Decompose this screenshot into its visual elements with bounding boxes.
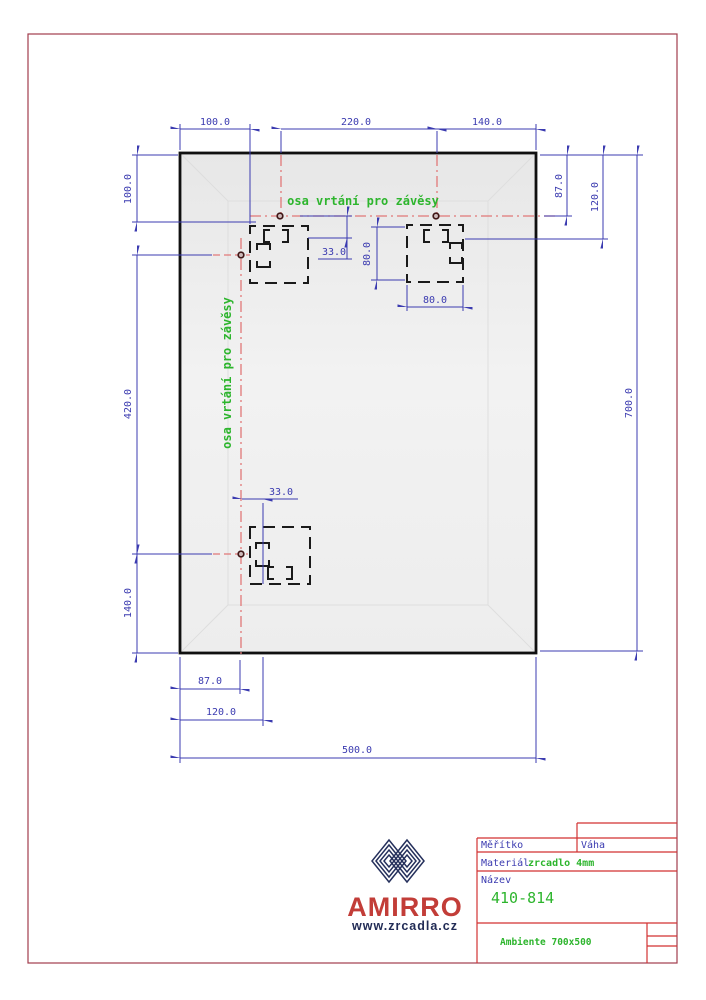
name-value: 410-814 [491,889,554,907]
dim-left-420: 420.0 [123,389,134,419]
dim-offset-top-33: 33.0 [322,247,346,258]
title-block: Měřítko Váha Materiál zrcadlo 4mm Název … [477,823,677,963]
axis-label-vertical: osa vrtání pro závěsy [220,297,234,449]
weight-label: Váha [581,839,605,851]
drawing-sheet: osa vrtání pro závěsy osa vrtání pro záv… [0,0,706,1000]
dim-right-120: 120.0 [590,182,601,212]
brand-name: AMIRRO [347,892,463,922]
dim-right-700: 700.0 [624,388,635,418]
material-value: zrcadlo 4mm [528,858,594,869]
dim-right-87: 87.0 [554,174,565,198]
dim-top-mid: 220.0 [341,117,371,128]
product-name: Ambiente 700x500 [500,937,592,948]
axis-label-horizontal: osa vrtání pro závěsy [287,194,439,208]
scale-label: Měřítko [481,839,523,851]
dim-top-right: 140.0 [472,117,502,128]
dim-bottom-120: 120.0 [206,707,236,718]
dim-hinge-width-80: 80.0 [423,295,447,306]
dim-top-left: 100.0 [200,117,230,128]
material-label: Materiál [481,857,529,869]
diamond-logo-icon [372,840,424,882]
dim-hinge-height-80: 80.0 [362,242,373,266]
dim-left-100: 100.0 [123,174,134,204]
dim-bottom-87: 87.0 [198,676,222,687]
dim-left-140: 140.0 [123,588,134,618]
amirro-logo: AMIRRO www.zrcadla.cz [347,840,463,933]
name-label: Název [481,874,511,886]
dim-bottom-500: 500.0 [342,745,372,756]
dim-offset-bottom-33: 33.0 [269,487,293,498]
brand-website: www.zrcadla.cz [351,919,458,933]
